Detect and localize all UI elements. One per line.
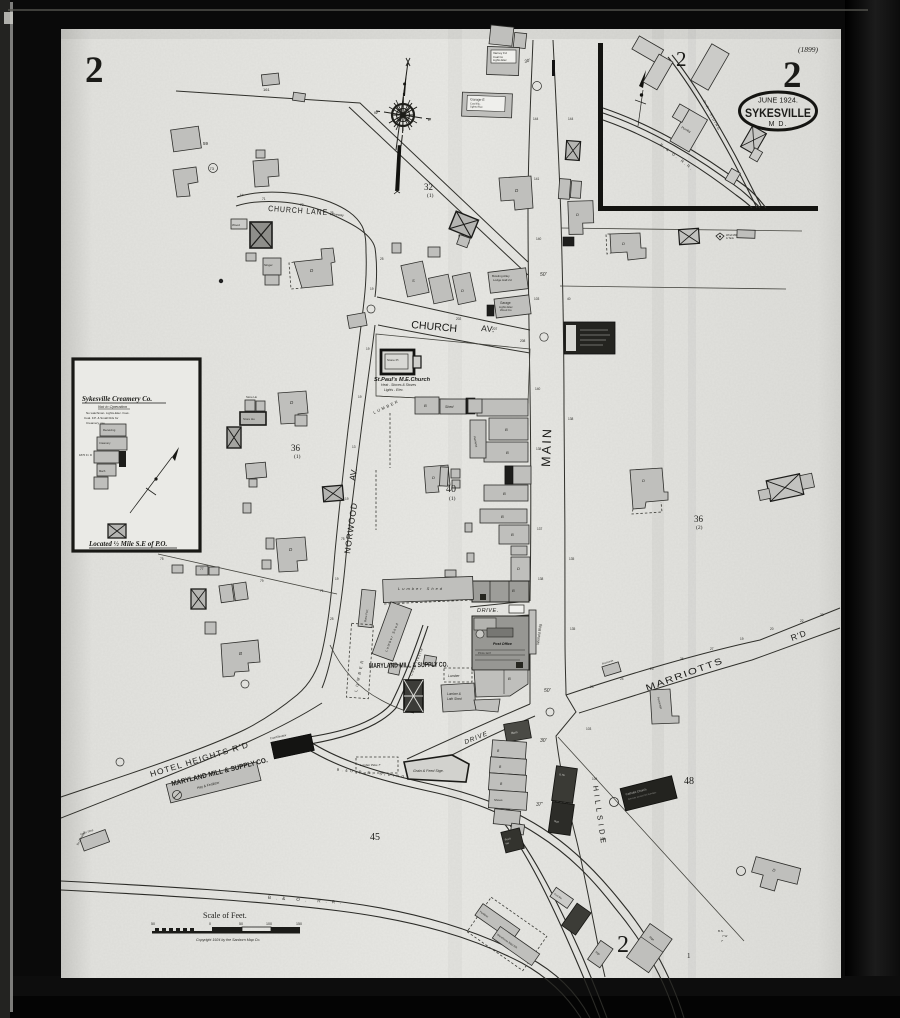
svg-text:104: 104 [592,777,598,781]
svg-text:36: 36 [291,443,301,453]
svg-text:B: B [508,676,511,681]
svg-text:141: 141 [534,177,540,181]
svg-text:AV.: AV. [347,468,359,482]
svg-text:40: 40 [446,484,456,495]
svg-text:7 W: 7 W [722,934,728,938]
svg-text:Lumber Shed: Lumber Shed [398,586,444,591]
svg-text:161: 161 [263,87,270,92]
svg-text:JUNE 1924.: JUNE 1924. [758,98,798,105]
svg-text:26: 26 [680,657,684,661]
svg-text:138: 138 [568,417,574,421]
svg-text:Coal. F.P. & Small bbls for: Coal. F.P. & Small bbls for [84,416,118,420]
svg-text:19: 19 [370,287,374,291]
svg-text:Store Ho: Store Ho [246,395,257,399]
svg-text:19: 19 [366,347,370,351]
svg-text:S: S [412,278,415,283]
svg-text:138: 138 [538,577,544,581]
svg-text:(1): (1) [449,495,456,502]
svg-text:SYKESVILLE: SYKESVILLE [745,106,811,120]
svg-text:20: 20 [770,627,774,631]
svg-text:2: 2 [676,47,687,71]
svg-text:1: 1 [687,952,691,960]
svg-text:140: 140 [536,237,542,241]
svg-text:(1899): (1899) [798,45,818,54]
svg-text:(2): (2) [696,524,703,531]
svg-text:Garage E: Garage E [470,97,485,102]
svg-text:105: 105 [600,837,606,841]
svg-text:W: W [374,110,378,115]
svg-text:19: 19 [345,497,349,501]
svg-text:25: 25 [380,257,384,261]
svg-text:27: 27 [710,647,714,651]
svg-text:75: 75 [341,537,345,541]
svg-text:22: 22 [800,619,804,623]
svg-text:D: D [432,475,435,480]
svg-text:50': 50' [540,272,548,278]
svg-text:Lumber Piles 7': Lumber Piles 7' [360,763,381,767]
svg-text:B: B [239,651,242,656]
svg-text:D: D [622,241,625,246]
svg-text:13: 13 [352,445,356,449]
svg-text:23: 23 [820,613,824,617]
svg-text:Lath Shed: Lath Shed [447,697,462,701]
svg-text:Lights-Elec: Lights-Elec [470,104,484,108]
svg-text:40: 40 [567,297,571,301]
svg-text:36: 36 [694,514,704,524]
svg-text:2: 2 [85,50,104,91]
svg-text:50: 50 [151,922,155,926]
svg-text:B: B [512,588,515,593]
svg-text:79: 79 [260,579,264,583]
svg-text:Not in Operation: Not in Operation [98,404,128,409]
svg-text:0: 0 [209,922,211,926]
svg-text:77: 77 [200,567,204,571]
svg-text:Shoes: Shoes [494,798,503,802]
svg-text:138: 138 [536,447,542,451]
svg-text:59: 59 [203,141,209,146]
svg-text:B: B [424,403,427,408]
svg-text:B: B [505,427,508,432]
svg-text:73: 73 [210,166,215,171]
svg-text:50: 50 [239,922,243,926]
svg-text:45: 45 [370,832,380,843]
svg-text:71: 71 [320,589,324,593]
svg-text:137: 137 [537,527,543,531]
svg-text:Prints 1st fl: Prints 1st fl [478,651,491,655]
svg-text:2: 2 [617,932,629,958]
svg-text:Shed: Shed [445,405,454,409]
svg-text:24: 24 [620,677,624,681]
svg-text:103: 103 [586,727,592,731]
svg-text:37': 37' [536,802,544,808]
svg-text:No watchman. Lights-Elec. Fuel: No watchman. Lights-Elec. Fuel- [86,411,129,415]
svg-text:150: 150 [296,922,302,926]
svg-text:135: 135 [570,627,576,631]
svg-text:Lights Elec: Lights Elec [493,58,507,62]
svg-text:75: 75 [330,211,334,215]
svg-text:144: 144 [533,117,539,121]
svg-text:Wood Co: Wood Co [500,308,512,312]
svg-text:208: 208 [520,339,526,343]
svg-text:Store Ho: Store Ho [243,417,255,421]
svg-text:48: 48 [684,776,694,787]
svg-text:25: 25 [330,617,334,621]
svg-text:19: 19 [740,637,744,641]
svg-text:50': 50' [544,688,552,694]
svg-text:202: 202 [456,317,462,321]
svg-text:19: 19 [335,577,339,581]
svg-text:73: 73 [300,203,304,207]
svg-text:D: D [461,288,464,293]
svg-text:25: 25 [650,667,654,671]
svg-text:100: 100 [266,922,272,926]
svg-text:Lumber &: Lumber & [447,692,461,696]
svg-text:2: 2 [783,55,802,96]
svg-text:B.S.: B.S. [718,929,724,933]
svg-text:Heat - Stoves & Stoves: Heat - Stoves & Stoves [381,383,416,387]
svg-text:75: 75 [160,557,164,561]
svg-text:Scale of Feet.: Scale of Feet. [203,911,247,920]
svg-text:Copyright 1924 by the Sanborn: Copyright 1924 by the Sanborn Map Co. [196,938,260,942]
svg-text:(1): (1) [294,453,301,460]
svg-text:207: 207 [492,327,498,331]
svg-text:Creamery: Creamery [99,441,111,445]
svg-text:& Tank: & Tank [726,236,735,240]
svg-text:B: B [501,514,504,519]
svg-text:B: B [511,532,514,537]
svg-text:103: 103 [534,297,540,301]
svg-text:32: 32 [424,182,433,192]
svg-text:23: 23 [590,685,594,689]
svg-text:D: D [517,566,520,571]
svg-text:19: 19 [358,395,362,399]
svg-text:(1): (1) [427,192,434,199]
svg-text:M D.: M D. [769,121,788,128]
svg-text:Stone Pt: Stone Pt [387,358,399,362]
svg-text:71: 71 [262,197,266,201]
svg-text:Lights - Elec.: Lights - Elec. [384,388,404,392]
svg-text:135: 135 [569,557,575,561]
svg-text:140: 140 [535,387,541,391]
svg-text:D: D [576,212,579,217]
svg-text:E: E [428,117,431,122]
svg-text:144: 144 [568,117,574,121]
svg-text:Post Office: Post Office [493,642,512,646]
svg-text:D: D [642,478,645,483]
svg-text:DRIVE.: DRIVE. [477,608,499,614]
svg-text:Wood: Wood [232,223,240,227]
svg-text:Sykesville Creamery Co.: Sykesville Creamery Co. [82,395,152,403]
svg-text:30': 30' [540,738,548,744]
svg-text:Grain & Feed Stge.: Grain & Feed Stge. [413,769,444,773]
svg-text:Receiving: Receiving [103,428,116,432]
svg-text:Lumber: Lumber [448,674,460,678]
svg-text:B: B [503,491,506,496]
svg-text:Mach: Mach [99,469,106,473]
svg-text:Located ½ Mile S.E of P.O.: Located ½ Mile S.E of P.O. [88,540,167,548]
svg-text:MARYLAND MILL & SUPPLY CO.: MARYLAND MILL & SUPPLY CO. [369,662,448,670]
svg-text:Lodge Hall 2d: Lodge Hall 2d [493,278,512,282]
svg-text:Singer: Singer [264,263,273,267]
svg-text:B: B [506,450,509,455]
svg-text:1870 Fr. D: 1870 Fr. D [79,453,92,457]
